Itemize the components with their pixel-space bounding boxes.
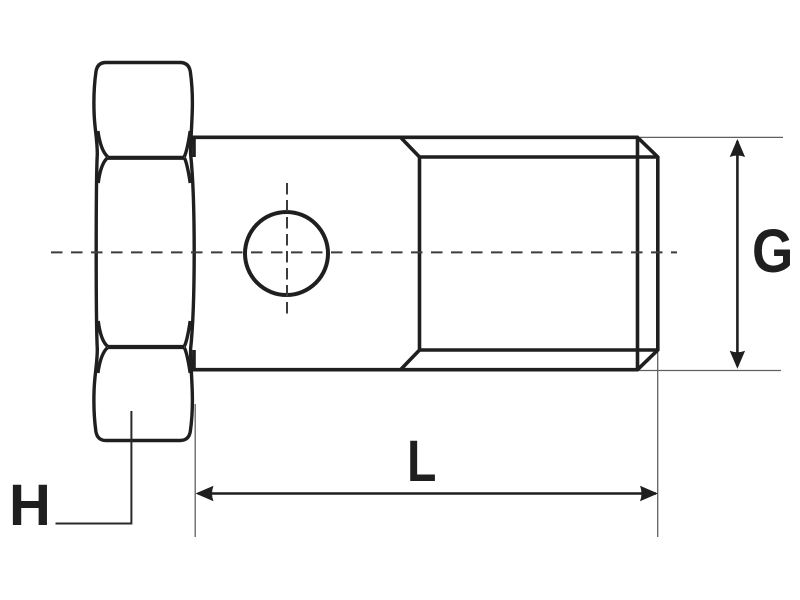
svg-text:H: H: [9, 473, 51, 538]
svg-text:G: G: [752, 218, 793, 286]
svg-text:L: L: [407, 430, 436, 494]
